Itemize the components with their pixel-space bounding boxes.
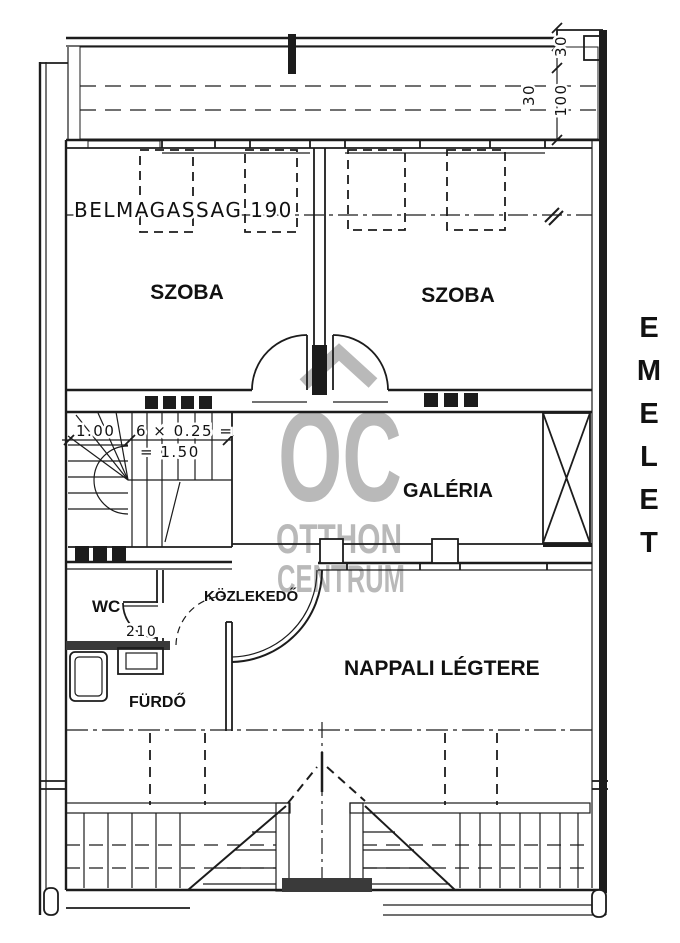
dim-corner-30: 30 <box>552 35 570 57</box>
floor-side-label: E M E L E T <box>637 312 661 559</box>
door-szoba-left <box>252 335 307 390</box>
railing-posts-stair-bottom <box>75 546 126 561</box>
living-room-airspace: NAPPALI LÉGTERE <box>66 657 592 888</box>
sink <box>118 648 163 674</box>
bathroom: FÜRDŐ <box>70 648 186 711</box>
room-label-nappali: NAPPALI LÉGTERE <box>344 657 540 680</box>
chimney <box>288 34 296 74</box>
dim-inner-30: 30 <box>520 84 538 106</box>
stair-result: = 1.50 <box>140 443 200 461</box>
spiral-stairs: 1.00 6 × 0.25 = = 1.50 <box>62 412 233 561</box>
bottom-roof-right <box>350 803 590 891</box>
watermark-logo: OC <box>278 386 402 529</box>
stair-formula: 6 × 0.25 = <box>136 422 233 440</box>
floor-letter-6: T <box>640 527 658 559</box>
room-label-kozlekedo: KÖZLEKEDŐ <box>204 587 299 605</box>
room-label-galeria: GALÉRIA <box>403 479 493 502</box>
corner-post-right <box>592 890 606 917</box>
railing-posts-right <box>424 393 478 407</box>
bottom-edge <box>44 878 607 917</box>
dimension-chain-top-right: 30 30 100 <box>520 23 570 145</box>
dim-100: 100 <box>552 83 570 116</box>
floor-plan-page: OC OTTHON CENTRUM <box>0 0 680 943</box>
floor-letter-1: E <box>639 312 658 344</box>
corner-post-left <box>44 888 58 915</box>
door-height-note: 210 <box>126 624 157 640</box>
ceiling-height-note: BELMAGASSAG 190 <box>74 198 293 222</box>
room-label-szoba-left: SZOBA <box>150 281 224 304</box>
wc-room: WC 210 <box>66 570 170 650</box>
floor-plan-drawing: OC OTTHON CENTRUM <box>0 0 680 943</box>
bottom-roof-left <box>66 803 290 891</box>
room-label-szoba-right: SZOBA <box>421 284 495 307</box>
floor-letter-4: L <box>640 441 658 473</box>
stair-run-width: 1.00 <box>76 422 115 440</box>
floor-letter-3: E <box>639 398 658 430</box>
floor-letter-5: E <box>639 484 658 516</box>
railing-posts-left <box>145 396 212 409</box>
room-label-furdo: FÜRDŐ <box>129 692 186 711</box>
floor-letter-2: M <box>637 355 661 387</box>
room-label-wc: WC <box>92 597 120 616</box>
